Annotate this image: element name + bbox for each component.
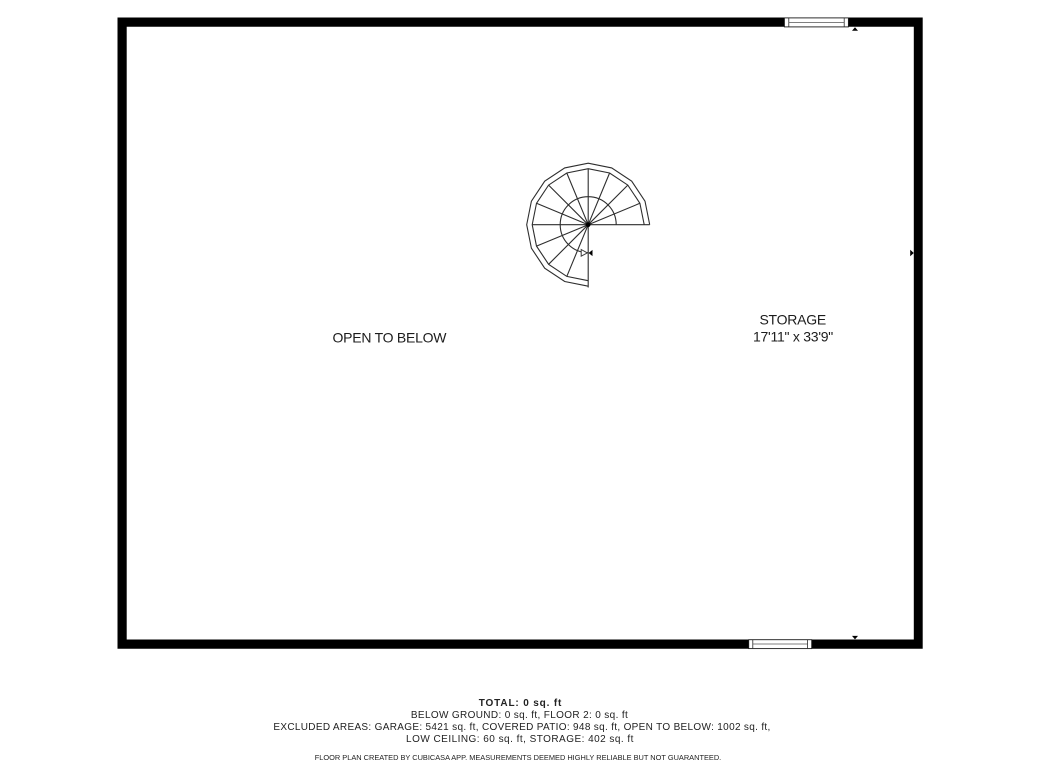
svg-text:OPEN TO BELOW: OPEN TO BELOW bbox=[333, 329, 448, 345]
svg-text:FLOOR PLAN CREATED BY CUBICASA: FLOOR PLAN CREATED BY CUBICASA APP. MEAS… bbox=[315, 753, 721, 762]
svg-text:EXCLUDED AREAS: GARAGE: 5421 s: EXCLUDED AREAS: GARAGE: 5421 sq. ft, COV… bbox=[273, 722, 770, 733]
svg-text:TOTAL: 0 sq. ft: TOTAL: 0 sq. ft bbox=[479, 698, 563, 709]
svg-text:LOW CEILING: 60 sq. ft, STORAG: LOW CEILING: 60 sq. ft, STORAGE: 402 sq.… bbox=[406, 734, 634, 745]
svg-text:STORAGE: STORAGE bbox=[759, 311, 825, 327]
svg-text:BELOW GROUND: 0 sq. ft, FLOOR: BELOW GROUND: 0 sq. ft, FLOOR 2: 0 sq. f… bbox=[411, 710, 628, 721]
svg-text:17'11" x 33'9": 17'11" x 33'9" bbox=[753, 328, 833, 344]
